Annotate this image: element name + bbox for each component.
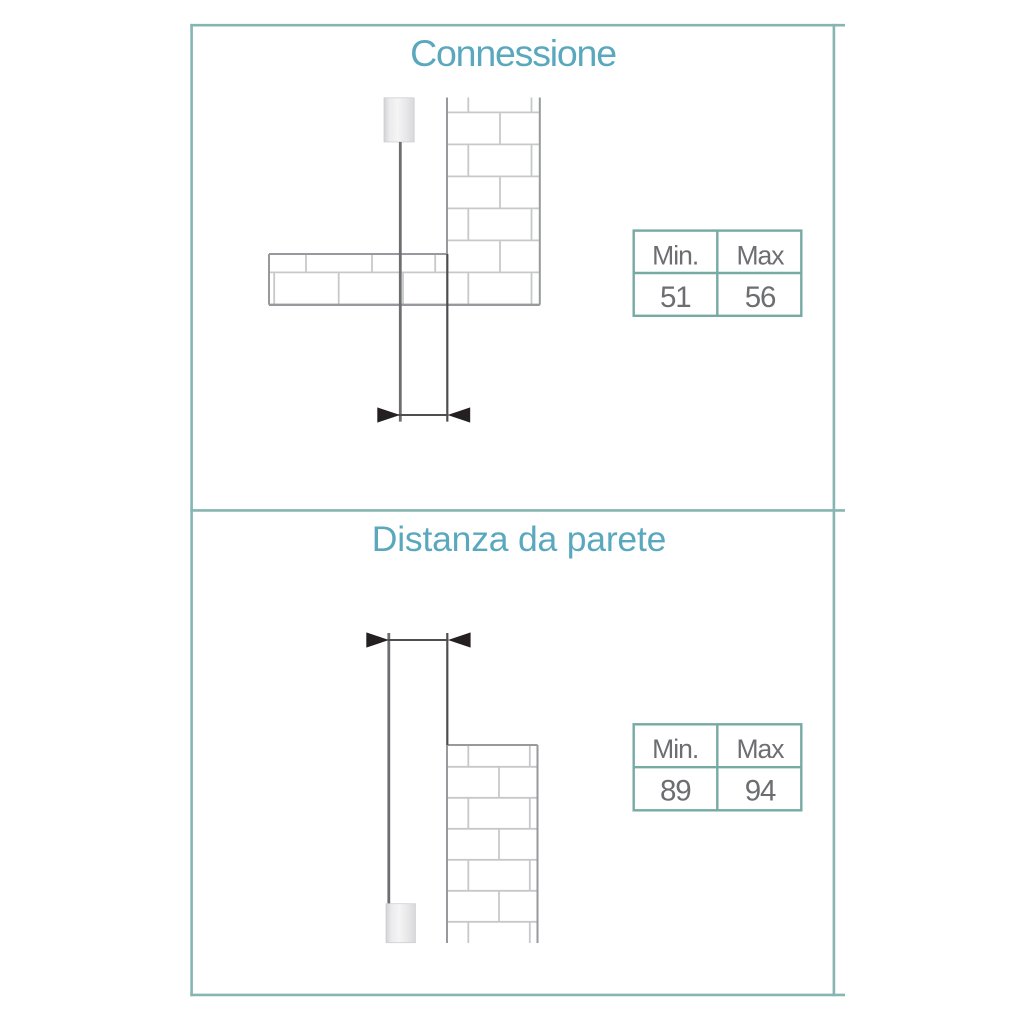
svg-text:Max: Max — [736, 734, 784, 764]
svg-text:94: 94 — [745, 775, 776, 808]
svg-text:56: 56 — [745, 281, 776, 314]
svg-text:Distanza da parete: Distanza da parete — [372, 519, 666, 559]
svg-text:Connessione: Connessione — [410, 32, 616, 74]
svg-text:Min.: Min. — [652, 734, 698, 764]
svg-text:89: 89 — [660, 775, 691, 808]
svg-text:Max: Max — [736, 240, 784, 270]
svg-text:51: 51 — [660, 281, 690, 314]
svg-text:Min.: Min. — [652, 240, 698, 270]
